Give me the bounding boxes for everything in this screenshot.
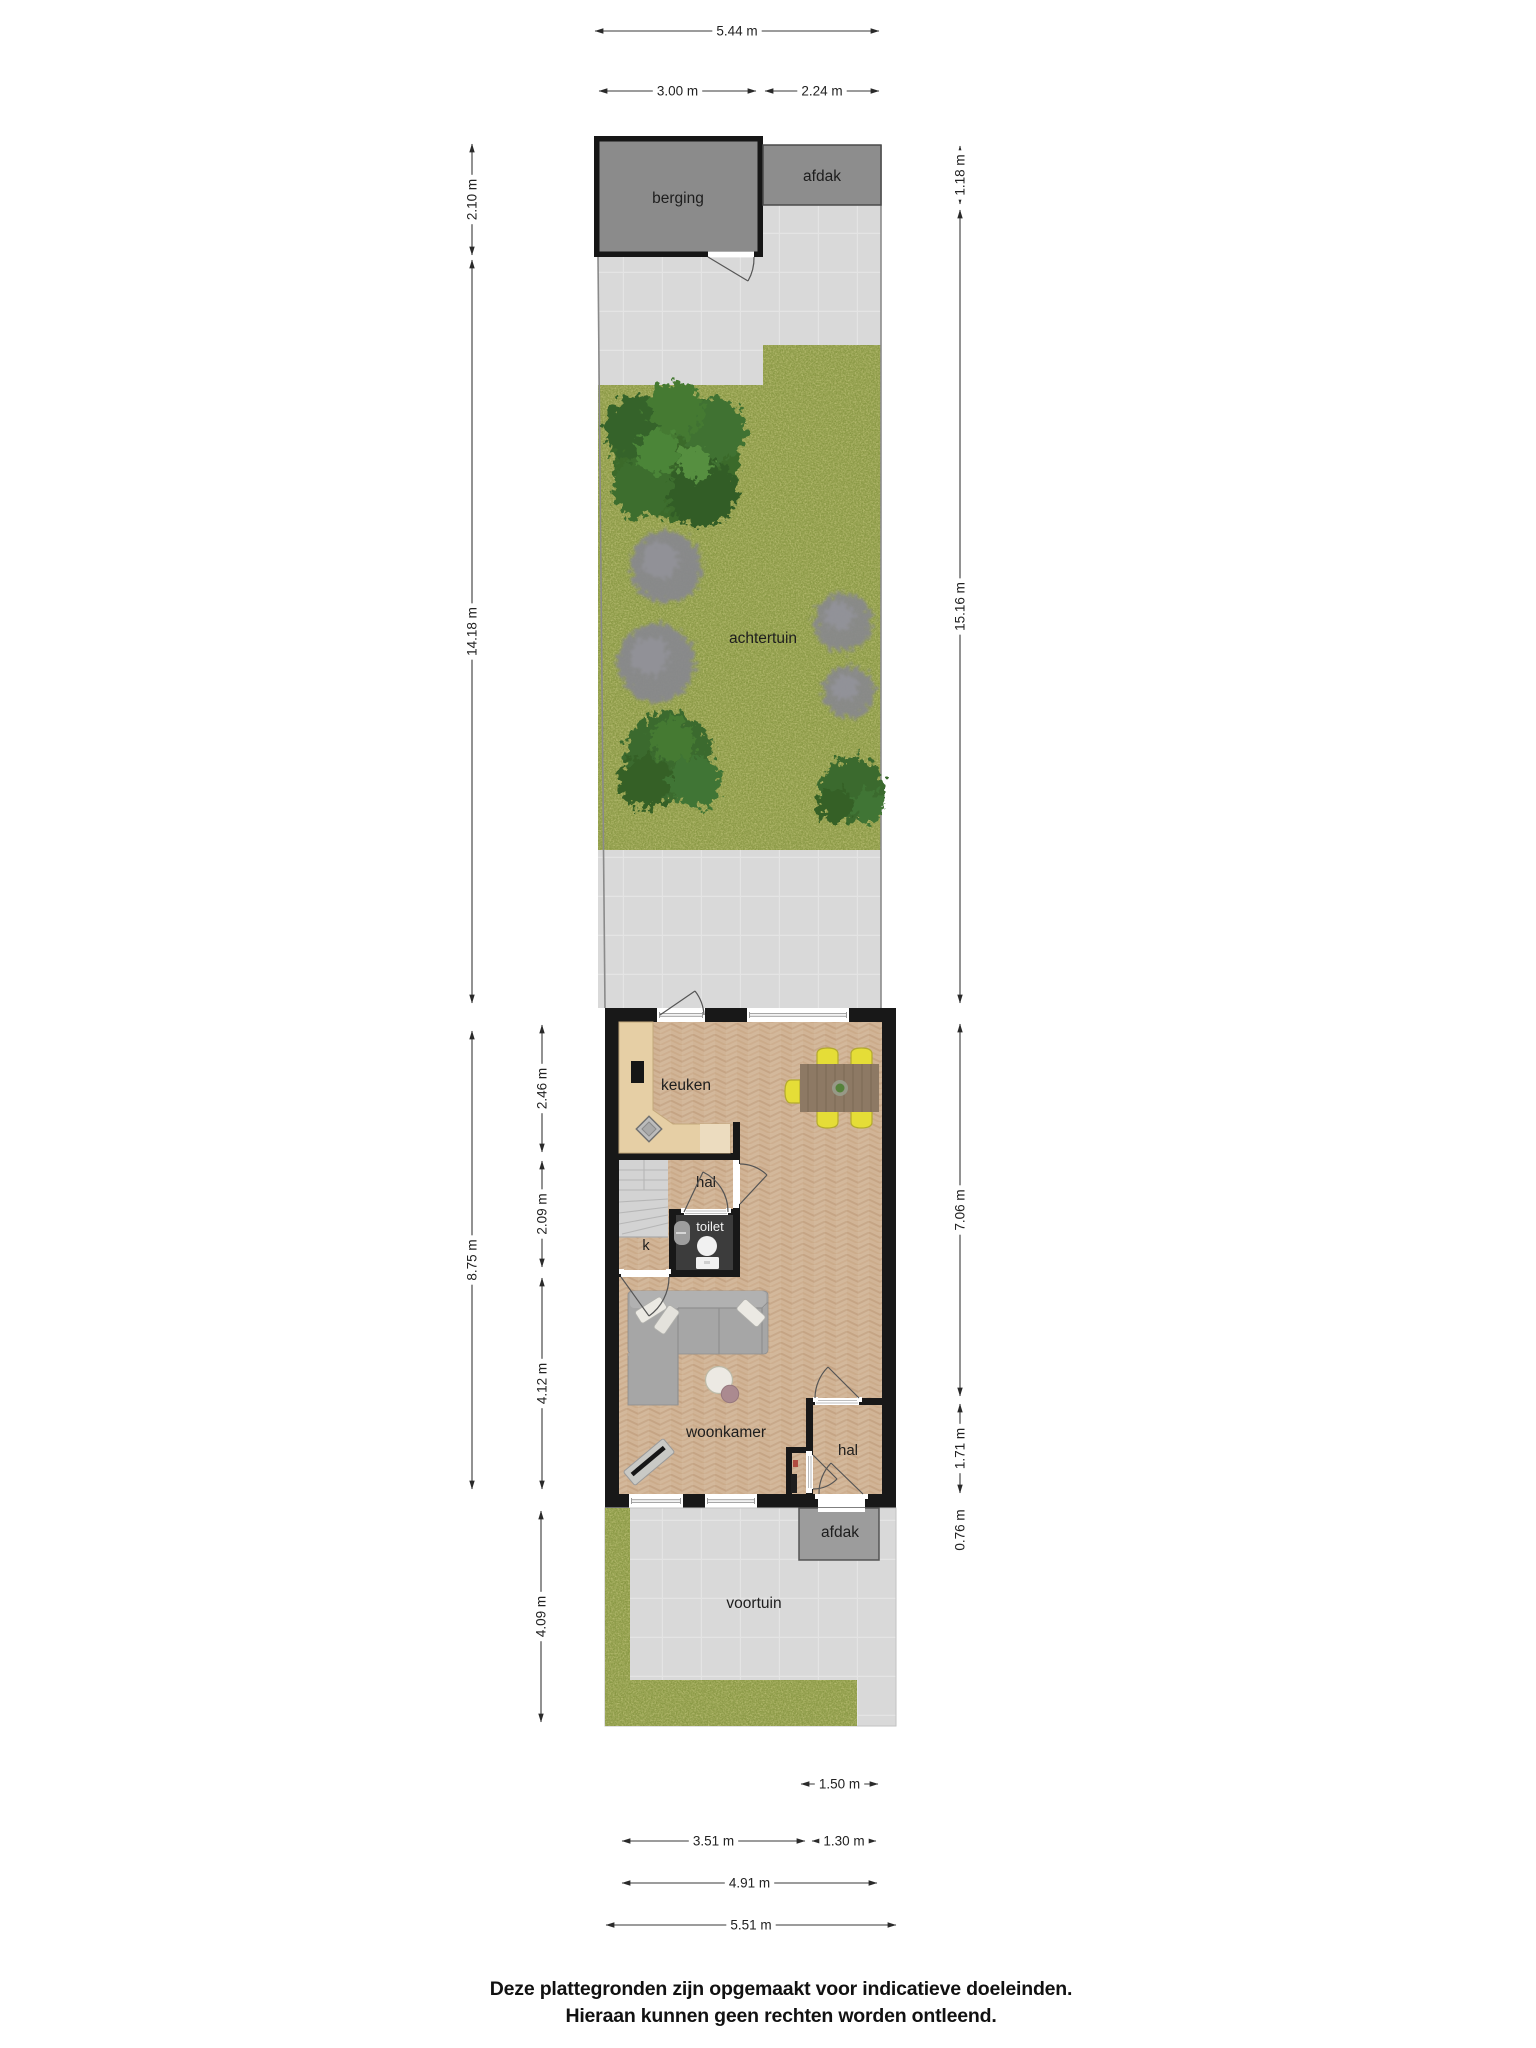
svg-text:voortuin: voortuin xyxy=(726,1595,781,1612)
svg-text:5.51 m: 5.51 m xyxy=(730,1918,771,1933)
svg-text:berging: berging xyxy=(652,190,704,207)
svg-text:hal: hal xyxy=(696,1174,716,1191)
svg-text:8.75 m: 8.75 m xyxy=(465,1239,480,1280)
svg-text:toilet: toilet xyxy=(696,1219,724,1234)
svg-text:Deze plattegronden zijn opgema: Deze plattegronden zijn opgemaakt voor i… xyxy=(490,1978,1072,2000)
svg-text:3.51 m: 3.51 m xyxy=(693,1834,734,1849)
svg-text:afdak: afdak xyxy=(821,1524,859,1541)
svg-text:woonkamer: woonkamer xyxy=(685,1424,766,1441)
svg-text:achtertuin: achtertuin xyxy=(729,630,797,647)
svg-text:1.30 m: 1.30 m xyxy=(823,1834,864,1849)
svg-text:2.46 m: 2.46 m xyxy=(535,1068,550,1109)
svg-text:2.10 m: 2.10 m xyxy=(465,179,480,220)
svg-text:keuken: keuken xyxy=(661,1077,711,1094)
svg-text:2.24 m: 2.24 m xyxy=(801,84,842,99)
svg-text:1.71 m: 1.71 m xyxy=(953,1428,968,1469)
svg-text:14.18 m: 14.18 m xyxy=(465,607,480,656)
svg-text:3.00 m: 3.00 m xyxy=(657,84,698,99)
svg-text:15.16 m: 15.16 m xyxy=(953,582,968,631)
svg-text:4.12 m: 4.12 m xyxy=(535,1363,550,1404)
svg-text:k: k xyxy=(642,1238,650,1254)
svg-text:1.18 m: 1.18 m xyxy=(953,154,968,195)
svg-text:hal: hal xyxy=(838,1442,858,1459)
svg-text:4.91 m: 4.91 m xyxy=(729,1876,770,1891)
svg-text:5.44 m: 5.44 m xyxy=(716,24,757,39)
svg-text:Hieraan kunnen geen rechten wo: Hieraan kunnen geen rechten worden ontle… xyxy=(565,2005,996,2027)
svg-text:1.50 m: 1.50 m xyxy=(819,1777,860,1792)
svg-text:7.06 m: 7.06 m xyxy=(953,1189,968,1230)
svg-text:0.76 m: 0.76 m xyxy=(953,1509,968,1550)
svg-text:4.09 m: 4.09 m xyxy=(534,1596,549,1637)
svg-text:afdak: afdak xyxy=(803,168,841,185)
svg-text:2.09 m: 2.09 m xyxy=(535,1193,550,1234)
